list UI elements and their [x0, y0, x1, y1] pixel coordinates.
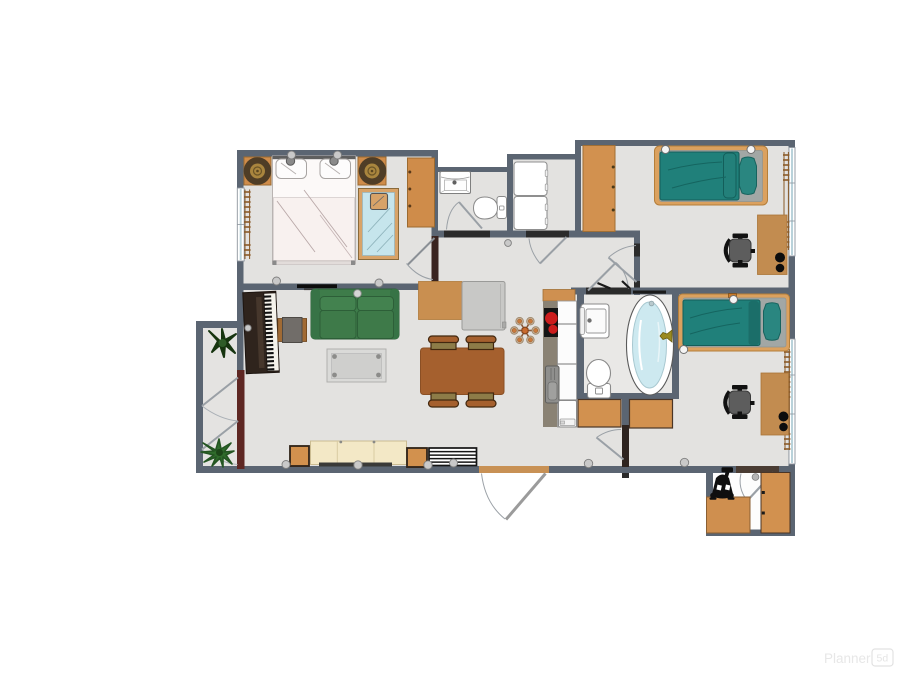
svg-text:5d: 5d [877, 653, 889, 665]
svg-text:Planner: Planner [824, 651, 871, 666]
